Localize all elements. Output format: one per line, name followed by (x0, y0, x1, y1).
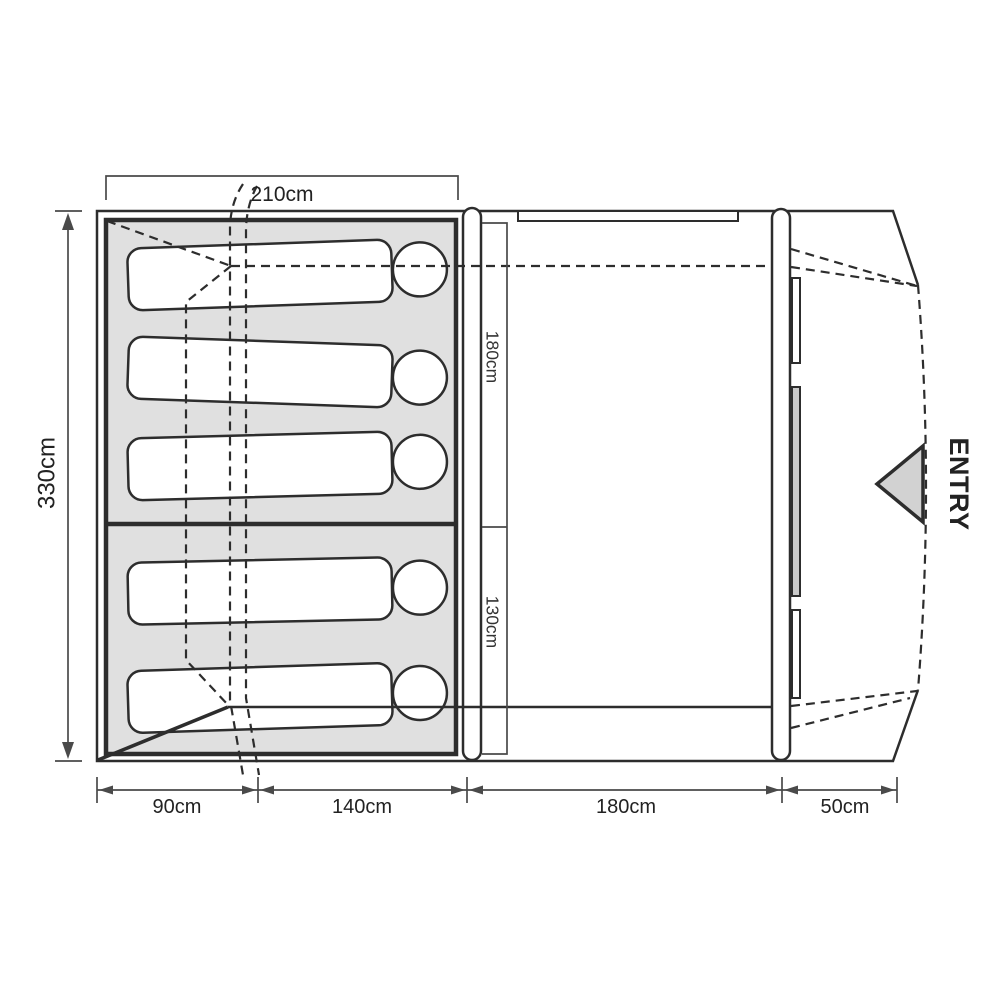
sleeper-body (127, 336, 393, 407)
dim-left-label: 330cm (33, 437, 60, 509)
dim-left: 330cm (33, 211, 82, 761)
sleeper-body (127, 663, 393, 733)
dim-arrowhead (260, 786, 274, 795)
front-window-strip (518, 211, 738, 221)
sleeper-head (392, 665, 448, 721)
dim-arrowhead (99, 786, 113, 795)
dim-bottom-label-4: 50cm (821, 796, 870, 818)
floorplan-canvas: ENTRY 210cm 330cm 180cm 130cm 90cm 140cm… (0, 0, 1000, 1000)
door-panel-top (792, 278, 800, 363)
guyline-top-right-b (791, 267, 917, 286)
sleeper-body (127, 557, 392, 625)
door-panel-middle (792, 387, 800, 596)
dim-bedroom-main-label: 180cm (482, 331, 502, 384)
dim-arrowhead (881, 786, 895, 795)
entry-arrow-icon (877, 446, 923, 522)
tent-floorplan-diagram: ENTRY 210cm 330cm 180cm 130cm 90cm 140cm… (0, 0, 1000, 1000)
dim-arrowhead (784, 786, 798, 795)
front-pole (772, 209, 790, 760)
guyline-bottom-right-b (791, 698, 910, 728)
divider-pole (463, 208, 481, 760)
dim-top-label: 210cm (250, 183, 313, 206)
dim-bedroom-small-label: 130cm (482, 596, 502, 649)
sleeper-body (127, 432, 393, 501)
dim-arrowhead (242, 786, 256, 795)
dim-arrowhead-down (62, 742, 74, 759)
sleeper-head (392, 560, 447, 615)
sleeper-body (127, 239, 393, 310)
dim-arrowhead-up (62, 213, 74, 230)
guyline-top-right-a (791, 249, 917, 286)
dim-bottom-label-3: 180cm (596, 796, 656, 818)
entry-label: ENTRY (944, 437, 974, 530)
sleeper-head (392, 350, 448, 406)
dim-bottom-label-2: 140cm (332, 796, 392, 818)
dim-arrowhead (451, 786, 465, 795)
dim-inner-bracket (482, 223, 507, 754)
door-panel-bottom (792, 610, 800, 698)
dim-bottom: 90cm 140cm 180cm 50cm (97, 777, 897, 818)
guyline-bottom-right-a (791, 691, 917, 706)
sleeper-head (392, 241, 448, 297)
dim-arrowhead (469, 786, 483, 795)
sleeper-head (392, 434, 447, 489)
dim-arrowhead (766, 786, 780, 795)
dim-bottom-label-1: 90cm (153, 796, 202, 818)
